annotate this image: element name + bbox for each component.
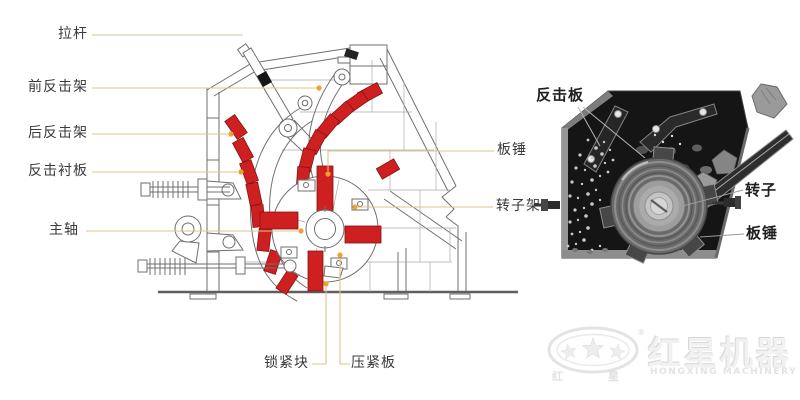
rock-at-inlet [752, 84, 787, 118]
blow-bar-right [345, 226, 381, 243]
photo-label-impact-plate: 反击板 [536, 87, 584, 103]
star-icon [560, 343, 578, 360]
star-icon [608, 343, 626, 360]
label-tie-rod: 拉杆 [18, 27, 88, 42]
registered-mark: ® [637, 328, 645, 337]
label-impact-liner: 反击衬板 [18, 164, 88, 179]
label-lock-block: 锁紧块 [264, 356, 309, 371]
photo-label-rotor: 转子 [745, 182, 777, 198]
rotor-assembly [260, 166, 381, 291]
label-blow-bar: 板锤 [497, 143, 527, 158]
label-pressing-plate: 压紧板 [351, 356, 396, 371]
photo-label-blow-bar: 板锤 [746, 225, 778, 241]
blow-bar-left [260, 212, 298, 229]
label-rear-impact-frame: 后反击架 [18, 126, 88, 141]
hongxing-logo: ® 红 星 红星机器 HONGXING MACHINERY [546, 322, 800, 398]
label-main-shaft: 主轴 [18, 223, 79, 238]
logo-char-left: 红 [552, 368, 563, 384]
logo-brand-en: HONGXING MACHINERY [650, 367, 797, 377]
impact-crusher-infographic: 拉杆 前反击架 后反击架 反击衬板 主轴 板锤 转子架 锁紧块 压紧板 反击板 … [0, 0, 800, 400]
crusher-cross-section-diagram [86, 35, 518, 364]
logo-char-right: 星 [608, 368, 619, 384]
label-front-impact-frame: 前反击架 [18, 80, 88, 95]
main-shaft-bearing [172, 216, 201, 263]
label-rotor-frame: 转子架 [496, 199, 541, 214]
blow-bar-top [317, 166, 333, 211]
blow-bar-bottom [308, 251, 323, 291]
star-icon [583, 338, 604, 358]
